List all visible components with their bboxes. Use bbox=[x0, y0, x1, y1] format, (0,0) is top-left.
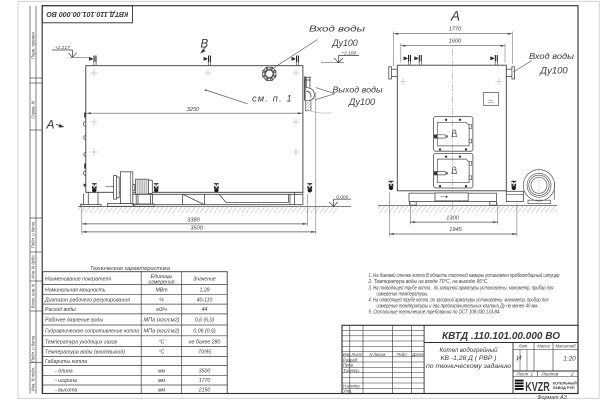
svg-text:2. Температура воды на входе: 2. Температура воды на входе 70°С, на вы… bbox=[368, 279, 489, 285]
svg-text:Утв.: Утв. bbox=[343, 389, 353, 394]
svg-text:Перв. примен.: Перв. примен. bbox=[31, 31, 36, 59]
svg-text:МПа (кгс/см2): МПа (кгс/см2) bbox=[144, 329, 180, 335]
svg-text:1945: 1945 bbox=[449, 227, 462, 233]
svg-text:Справ. N: Справ. N bbox=[31, 100, 36, 118]
svg-text:КВТД .110.101.00.000 ВО: КВТД .110.101.00.000 ВО bbox=[442, 330, 560, 342]
svg-text:2: 2 bbox=[570, 372, 574, 377]
svg-text:3500: 3500 bbox=[190, 225, 203, 231]
svg-text:Подп. и дата: Подп. и дата bbox=[31, 221, 36, 248]
svg-text:Диапазон рабочего регулировани: Диапазон рабочего регулирования bbox=[44, 297, 130, 303]
svg-text:Габариты котла: Габариты котла bbox=[45, 359, 87, 365]
svg-text:Подп.: Подп. bbox=[397, 352, 408, 357]
svg-text:2150: 2150 bbox=[198, 387, 211, 393]
svg-text:измерения температуры.: измерения температуры. bbox=[377, 291, 429, 297]
svg-text:Масштаб: Масштаб bbox=[556, 344, 577, 349]
svg-text:- ширина: - ширина bbox=[55, 378, 77, 384]
svg-text:1300: 1300 bbox=[446, 216, 459, 222]
svg-text:мм: мм bbox=[158, 369, 166, 375]
svg-text:Масса: Масса bbox=[537, 344, 550, 349]
svg-text:3500: 3500 bbox=[199, 369, 211, 375]
svg-text:Вход воды: Вход воды bbox=[529, 52, 574, 61]
svg-text:Т.контр.: Т.контр. bbox=[343, 368, 360, 373]
svg-text:Температура воды (вход/выход): Температура воды (вход/выход) bbox=[45, 350, 125, 356]
svg-text:Вход воды: Вход воды bbox=[309, 25, 365, 34]
svg-text:Подп. и дата: Подп. и дата bbox=[31, 335, 36, 362]
svg-text:+2.217: +2.217 bbox=[55, 45, 70, 51]
svg-text:0,6 (6,0): 0,6 (6,0) bbox=[195, 318, 215, 324]
svg-text:Значение: Значение bbox=[193, 277, 216, 283]
svg-text:А: А bbox=[46, 118, 55, 132]
svg-text:0,06 (0,6): 0,06 (0,6) bbox=[193, 329, 215, 335]
svg-text:0.000: 0.000 bbox=[336, 194, 348, 200]
svg-text:KVZR: KVZR bbox=[525, 380, 550, 394]
svg-text:МПа (кгс/см2): МПа (кгс/см2) bbox=[144, 318, 180, 324]
svg-text:- длина: - длина bbox=[55, 369, 73, 375]
svg-text:А: А bbox=[450, 9, 460, 24]
svg-text:см. п. 1: см. п. 1 bbox=[252, 94, 293, 104]
svg-text:КВ -1,28 Д ( РВР ): КВ -1,28 Д ( РВР ) bbox=[441, 355, 497, 362]
svg-text:Расход воды: Расход воды bbox=[45, 307, 76, 313]
svg-text:Листов: Листов bbox=[541, 372, 559, 377]
svg-text:Температура уходящих газов: Температура уходящих газов bbox=[45, 339, 117, 345]
svg-text:3. На подводящей трубе котла: 3. На подводящей трубе котла , до запорн… bbox=[369, 284, 554, 291]
svg-text:- высота: - высота bbox=[55, 387, 77, 393]
svg-text:мм: мм bbox=[158, 378, 166, 384]
svg-text:измерения: измерения bbox=[149, 279, 175, 285]
svg-text:°С: °С bbox=[159, 339, 165, 345]
svg-text:40-110: 40-110 bbox=[197, 297, 213, 303]
svg-text:70/95: 70/95 bbox=[198, 350, 211, 356]
svg-text:Формат А3: Формат А3 bbox=[537, 395, 567, 400]
svg-text:1. На боковой стенке котла В: 1. На боковой стенке котла В области топ… bbox=[369, 272, 560, 279]
svg-text:МВт: МВт bbox=[155, 288, 168, 294]
svg-text:Пров.: Пров. bbox=[343, 363, 354, 368]
svg-text:Лит.: Лит. bbox=[518, 344, 529, 349]
svg-text:Изм.Лист: Изм.Лист bbox=[343, 352, 363, 357]
svg-text:1600: 1600 bbox=[449, 39, 462, 45]
svg-text:Наименование показателя: Наименование показателя bbox=[45, 277, 111, 283]
svg-text:4. На отводящей трубе котла ,: 4. На отводящей трубе котла ,до запорной… bbox=[369, 297, 549, 304]
svg-text:Гидравлическое сопротивление к: Гидравлическое сопротивление котла bbox=[45, 329, 139, 335]
svg-text:Лист: Лист bbox=[516, 372, 529, 377]
svg-text:не более 280: не более 280 bbox=[189, 339, 221, 345]
svg-text:N докум.: N докум. bbox=[369, 352, 386, 357]
svg-text:Взам. инв. N: Взам. инв. N bbox=[31, 283, 36, 308]
svg-text:3380: 3380 bbox=[187, 217, 200, 223]
svg-text:Инв. N подл.: Инв. N подл. bbox=[31, 367, 36, 391]
svg-text:Техническая характеристика: Техническая характеристика bbox=[90, 266, 170, 272]
svg-text:м3/ч: м3/ч bbox=[156, 307, 167, 313]
svg-text:КОТЕЛЬНЫЙ: КОТЕЛЬНЫЙ bbox=[553, 381, 577, 385]
svg-text:Рабочее давление воды: Рабочее давление воды bbox=[45, 318, 103, 324]
svg-text:1770: 1770 bbox=[199, 378, 211, 384]
svg-text:Инв. N дубл.: Инв. N дубл. bbox=[31, 254, 36, 278]
svg-text:1:20: 1:20 bbox=[563, 355, 576, 362]
svg-text:Ду100: Ду100 bbox=[348, 97, 375, 107]
svg-text:Ду100: Ду100 bbox=[331, 38, 357, 48]
svg-text:+2.100: +2.100 bbox=[341, 51, 356, 57]
svg-text:ЗАВОД РЭП: ЗАВОД РЭП bbox=[553, 386, 575, 390]
svg-text:Выход воды: Выход воды bbox=[333, 85, 383, 95]
svg-text:44: 44 bbox=[202, 307, 208, 313]
svg-text:1,28: 1,28 bbox=[199, 288, 209, 294]
svg-text:Номинальная мощность: Номинальная мощность bbox=[45, 288, 106, 294]
svg-text:°С: °С bbox=[159, 350, 165, 356]
svg-text:Котел водогрейный: Котел водогрейный bbox=[440, 347, 499, 354]
svg-text:5. Остальные технические треб: 5. Остальные технические требования по О… bbox=[369, 310, 501, 316]
svg-text:Ду100: Ду100 bbox=[539, 66, 568, 77]
svg-text:3250: 3250 bbox=[187, 107, 200, 113]
svg-text:%: % bbox=[159, 297, 164, 303]
svg-text:КВТД.110.101.00.000 ВО: КВТД.110.101.00.000 ВО bbox=[46, 10, 128, 19]
svg-text:1770: 1770 bbox=[449, 27, 462, 33]
svg-text:по техническому заданию: по техническому заданию bbox=[426, 363, 511, 370]
svg-text:1: 1 bbox=[531, 372, 534, 377]
svg-text:мм: мм bbox=[158, 387, 166, 393]
svg-text:Дата: Дата bbox=[411, 352, 424, 357]
